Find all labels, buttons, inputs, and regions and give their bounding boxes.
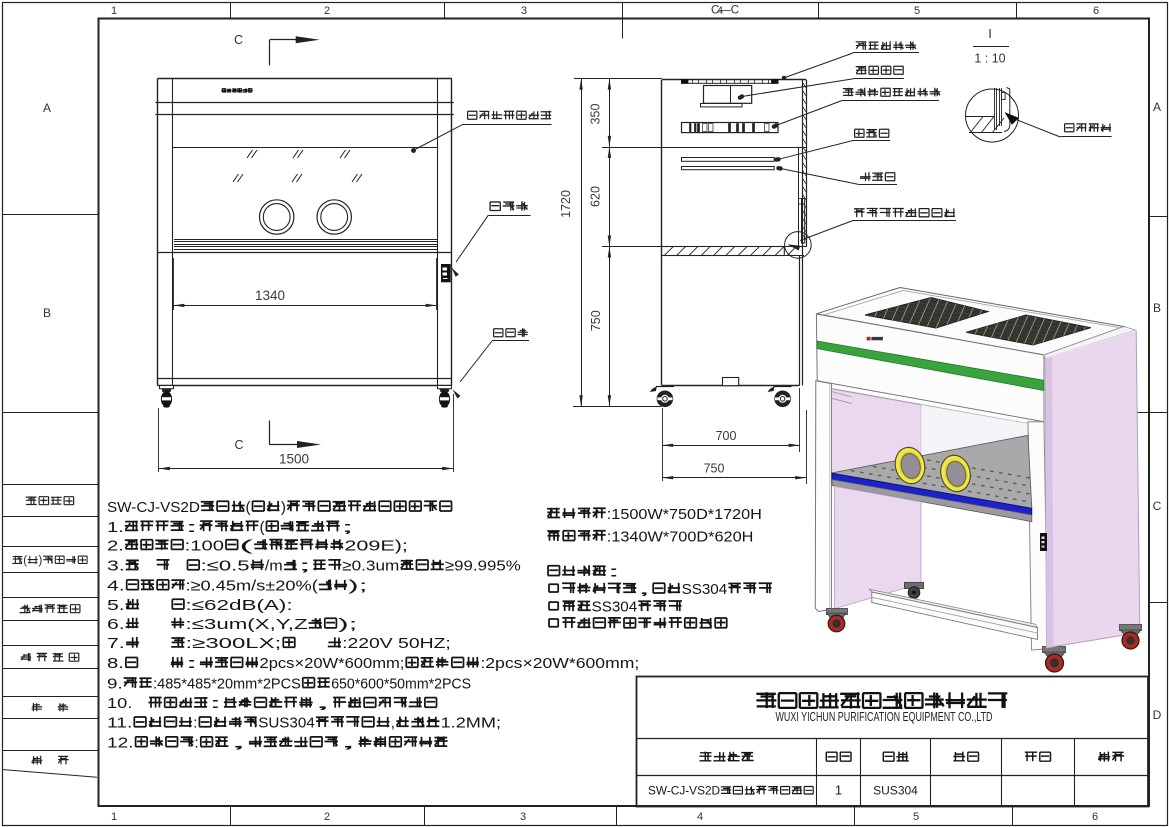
svg-text:I: I — [988, 26, 992, 41]
svg-text::220V 50HZ;: :220V 50HZ; — [342, 635, 451, 652]
svg-text:WUXI YICHUN PURIFICATION EQUIP: WUXI YICHUN PURIFICATION EQUIPMENT CO.,L… — [776, 710, 993, 724]
svg-text:4: 4 — [697, 811, 703, 823]
svg-text:SUS304: SUS304 — [873, 784, 918, 798]
svg-text::≥300LX;: :≥300LX; — [186, 635, 282, 652]
svg-text:1: 1 — [835, 783, 842, 798]
svg-text:700: 700 — [716, 429, 737, 443]
svg-text:11.: 11. — [107, 715, 132, 732]
svg-text:750: 750 — [704, 462, 725, 476]
svg-text:B: B — [1153, 301, 1161, 315]
svg-text:A: A — [43, 101, 51, 115]
svg-text:10.: 10. — [107, 695, 132, 712]
svg-text:C: C — [234, 438, 243, 452]
svg-text:(: ( — [239, 537, 253, 554]
svg-text:750: 750 — [589, 310, 603, 331]
svg-text::1500W*750D*1720H: :1500W*750D*1720H — [607, 506, 762, 523]
svg-text::2pcs×20W*600mm;: :2pcs×20W*600mm; — [480, 655, 639, 672]
svg-text:209E);: 209E); — [344, 537, 408, 554]
svg-text::: : — [208, 695, 222, 712]
svg-text:1.: 1. — [107, 519, 124, 536]
svg-text::485*485*20mm*2PCS: :485*485*20mm*2PCS — [153, 675, 301, 692]
svg-text:350: 350 — [589, 104, 603, 125]
svg-text:,: , — [339, 735, 357, 752]
svg-text:SW-CJ-VS2D: SW-CJ-VS2D — [107, 499, 200, 516]
svg-text:C: C — [234, 33, 243, 47]
svg-text:1340: 1340 — [255, 288, 285, 303]
svg-text:7.: 7. — [107, 635, 125, 652]
svg-text:1.2MM;: 1.2MM; — [441, 715, 501, 732]
svg-text:(: ( — [260, 519, 265, 536]
svg-text::: : — [193, 715, 197, 732]
svg-text::1340W*700D*620H: :1340W*700D*620H — [607, 528, 754, 545]
svg-text:SS304: SS304 — [592, 599, 638, 616]
svg-text:SS304: SS304 — [682, 581, 728, 598]
svg-text:B: B — [43, 306, 51, 320]
svg-text:≥99.995%: ≥99.995% — [445, 558, 521, 575]
svg-text:8.: 8. — [107, 655, 124, 672]
svg-text:3: 3 — [520, 811, 526, 823]
svg-text:6: 6 — [1093, 5, 1099, 17]
svg-text:2: 2 — [324, 811, 330, 823]
svg-text:;: ; — [298, 558, 312, 575]
svg-text:): ) — [39, 555, 43, 567]
svg-text:1500: 1500 — [279, 452, 309, 467]
svg-text:);: ); — [338, 616, 357, 633]
svg-text:A: A — [1153, 100, 1161, 114]
svg-text:620: 620 — [589, 186, 603, 207]
svg-text:,: , — [229, 735, 247, 752]
svg-text:,: , — [637, 581, 651, 598]
svg-text::≥0.45m/s±20%(: :≥0.45m/s±20%( — [186, 578, 318, 595]
svg-text::100: :100 — [185, 537, 224, 554]
svg-text:2: 2 — [324, 5, 330, 17]
svg-text::≤62dB(A):: :≤62dB(A): — [186, 597, 293, 614]
svg-text::≤3um(X,Y,Z: :≤3um(X,Y,Z — [186, 616, 308, 633]
svg-text:9.: 9. — [107, 675, 123, 692]
svg-text:1: 1 — [111, 5, 117, 17]
svg-text:4.: 4. — [107, 578, 125, 595]
svg-text:≥0.3um: ≥0.3um — [342, 558, 399, 575]
svg-text:,: , — [314, 695, 332, 712]
svg-text::: : — [194, 735, 198, 752]
svg-text:(: ( — [23, 555, 27, 567]
svg-text:5.: 5. — [107, 597, 125, 614]
svg-text:C—C: C—C — [711, 5, 739, 17]
svg-text:SUS304: SUS304 — [258, 715, 315, 732]
svg-text:;: ; — [341, 519, 355, 536]
svg-text:5: 5 — [913, 811, 919, 823]
svg-text::≤0.5: :≤0.5 — [201, 558, 250, 575]
svg-text:2.: 2. — [107, 537, 124, 554]
svg-text:2pcs×20W*600mm;: 2pcs×20W*600mm; — [260, 655, 405, 672]
svg-text:C: C — [1153, 499, 1162, 513]
svg-text:);: ); — [348, 578, 367, 595]
svg-text:3.: 3. — [107, 558, 125, 575]
svg-text:): ) — [281, 499, 286, 516]
svg-text::: : — [185, 655, 199, 672]
svg-text:SW-CJ-VS2D: SW-CJ-VS2D — [648, 784, 720, 798]
svg-text::: : — [185, 519, 199, 536]
svg-text:/m: /m — [265, 558, 283, 575]
svg-text:650*600*50mm*2PCS: 650*600*50mm*2PCS — [331, 675, 471, 692]
svg-text:(: ( — [246, 499, 251, 516]
svg-text:3: 3 — [521, 5, 527, 17]
svg-text:12.: 12. — [107, 735, 134, 752]
svg-text:5: 5 — [914, 5, 920, 17]
svg-text::: : — [607, 563, 621, 580]
svg-text:D: D — [1153, 708, 1162, 722]
svg-text:6: 6 — [1092, 811, 1098, 823]
svg-text:6.: 6. — [107, 616, 125, 633]
svg-text:,: , — [391, 715, 395, 732]
svg-text:1720: 1720 — [559, 190, 573, 218]
svg-text:1: 1 — [111, 811, 117, 823]
svg-text:1 : 10: 1 : 10 — [974, 52, 1005, 66]
